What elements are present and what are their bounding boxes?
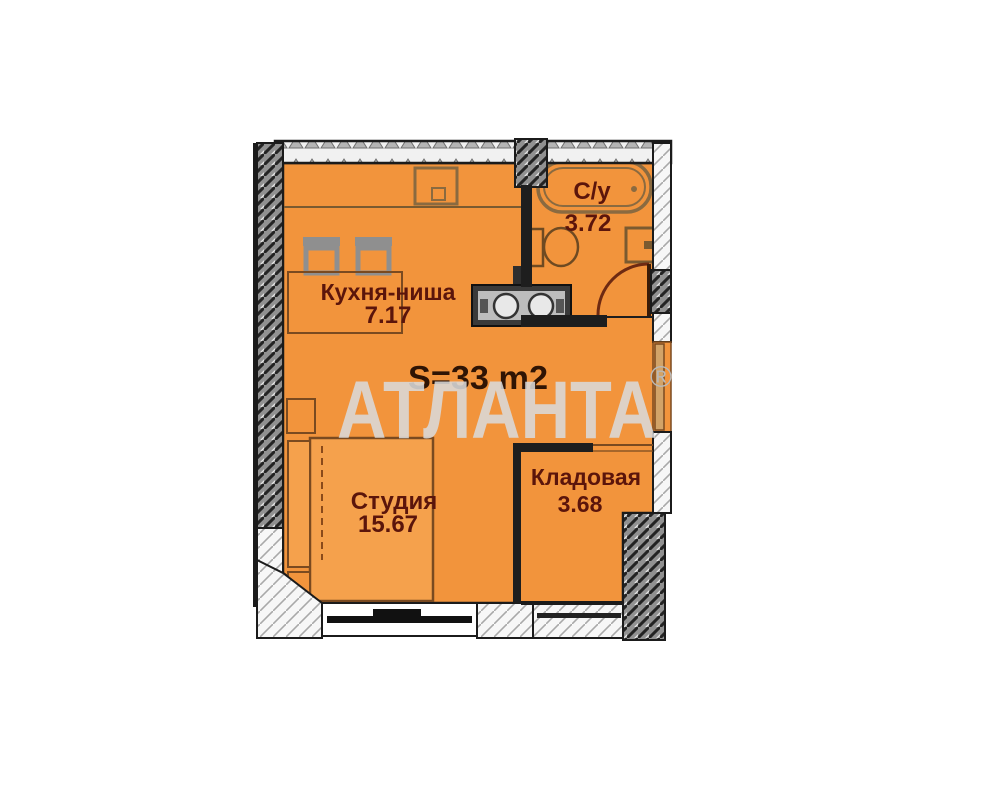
right-wall-upper <box>653 143 671 270</box>
window-icon <box>322 603 477 636</box>
top-exterior-wall <box>275 141 671 163</box>
studio-area-value: 15.67 <box>358 511 418 538</box>
right-wall-mid <box>653 313 671 342</box>
bathroom-partition-wall <box>521 185 532 287</box>
left-exterior-wall-glazing <box>257 143 283 528</box>
registered-trademark-icon: ® <box>650 361 672 394</box>
bathroom-bottom-wall <box>521 315 607 327</box>
floorplan-drawing: Кухня-ниша 7.17 С/у 3.72 Студия 15.67 Кл… <box>0 0 1004 800</box>
vent-box-icon <box>415 168 457 204</box>
wall-sink-icon <box>626 228 654 262</box>
bottom-pillar-wall <box>477 603 533 638</box>
window-icon <box>533 603 623 638</box>
storage-bottom-line <box>521 601 623 605</box>
watermark-text: АТЛАНТА <box>337 365 657 456</box>
nightstand-icon <box>287 399 315 433</box>
storage-left-wall <box>513 443 521 603</box>
storage-area-value: 3.68 <box>558 491 603 517</box>
bottom-right-wall <box>623 513 665 640</box>
storage-label: Кладовая <box>531 464 641 490</box>
bathroom-area-value: 3.72 <box>565 210 612 237</box>
bathroom-label: С/у <box>573 178 611 205</box>
floorplan-page: Кухня-ниша 7.17 С/у 3.72 Студия 15.67 Кл… <box>0 0 1004 800</box>
partition-top-block <box>515 139 547 187</box>
kitchen-area-value: 7.17 <box>365 302 412 329</box>
right-wall-dark-block <box>651 270 671 313</box>
